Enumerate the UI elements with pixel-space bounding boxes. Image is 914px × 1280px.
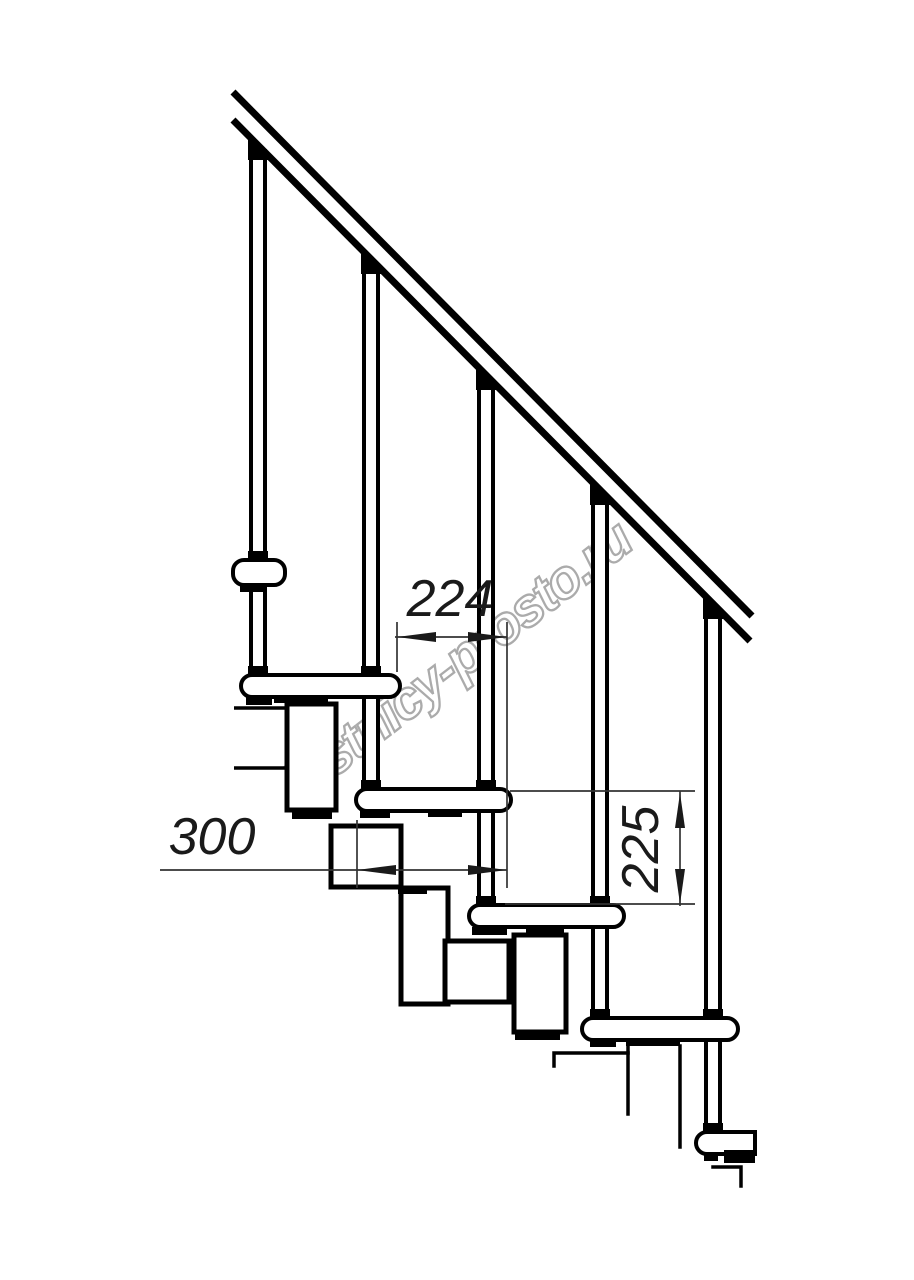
tread-3: [469, 905, 624, 927]
lower-cut-line-1: [554, 1053, 628, 1066]
flange-t3b: [526, 928, 564, 933]
flange-t4a: [590, 1040, 616, 1047]
flange-t0: [240, 585, 264, 592]
arrow-225-down: [675, 869, 685, 904]
tread-connector-b5-t4: [703, 1009, 723, 1020]
tread-connector-b3-t2: [476, 780, 496, 791]
stringer-module-5: [514, 935, 566, 1032]
dim-label-225: 225: [612, 805, 670, 894]
arrow-224-left: [397, 632, 436, 642]
flange-t2a: [360, 811, 390, 818]
tread-connector-b1-t1: [248, 666, 268, 677]
tread-2: [356, 789, 511, 811]
tread-1: [241, 675, 400, 697]
upper-landing-bracket: [233, 560, 285, 585]
flange-t5a: [704, 1153, 718, 1161]
module-joint-2: [398, 886, 427, 894]
flange-t2b: [428, 812, 462, 817]
arrow-225-up: [675, 793, 685, 828]
tread-connector-b3-t3: [476, 896, 496, 907]
tread-connector-b4-t3: [590, 896, 610, 907]
tread-connector-b5-t5: [703, 1123, 723, 1134]
lower-cut-line-4: [713, 1167, 741, 1186]
baluster-4: [593, 496, 607, 1024]
staircase-drawing: lestnicy-prosto.ru: [0, 0, 914, 1280]
stringer-module-4: [445, 941, 509, 1002]
tread-connector-b2-t1: [361, 666, 381, 677]
stringer-module-2: [331, 826, 401, 887]
flange-t3a: [472, 927, 507, 935]
flange-t4b: [626, 1041, 680, 1046]
tread-connector-b2-t2: [361, 780, 381, 791]
baluster-1: [251, 151, 265, 681]
baluster-5: [706, 610, 720, 1138]
baluster-3: [479, 381, 493, 911]
tread-connector-b1-t0: [248, 551, 268, 562]
dim-label-300: 300: [169, 808, 256, 866]
stringer-module-1: [287, 704, 336, 810]
drawing-canvas: lestnicy-prosto.ru: [0, 0, 914, 1280]
tread-4: [582, 1018, 738, 1040]
baluster-2: [364, 265, 378, 795]
module-joint-1: [292, 810, 332, 819]
dim-label-224: 224: [406, 570, 494, 628]
tread-connector-b4-t4: [590, 1009, 610, 1020]
stringer-module-3: [401, 888, 448, 1004]
flange-t5b: [724, 1150, 755, 1163]
flange-t1a: [246, 697, 272, 705]
flange-t1b: [274, 698, 328, 703]
module-joint-3: [515, 1031, 560, 1040]
